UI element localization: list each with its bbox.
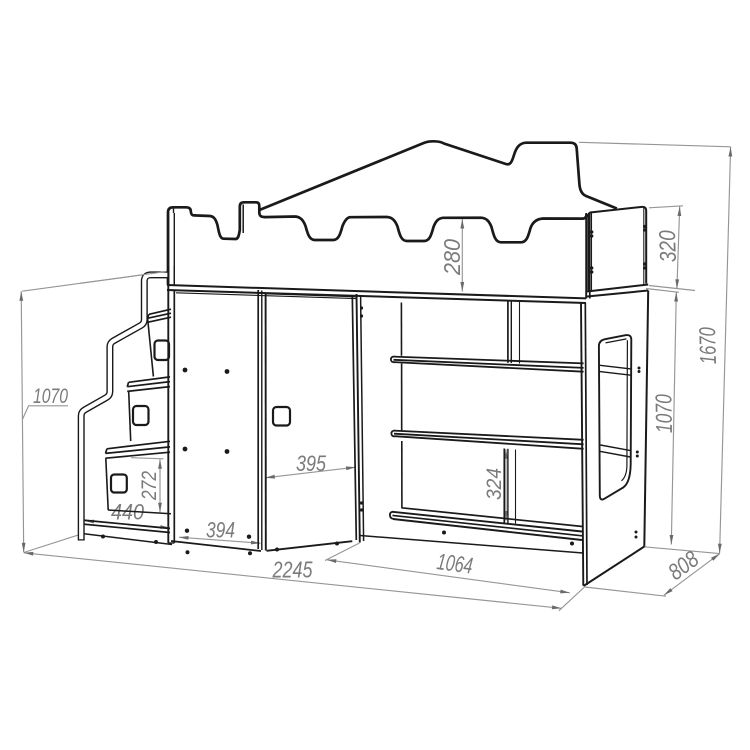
svg-text:1064: 1064 xyxy=(435,548,474,578)
svg-text:394: 394 xyxy=(206,518,235,543)
svg-text:272: 272 xyxy=(138,471,161,501)
svg-text:1670: 1670 xyxy=(694,327,721,365)
svg-text:324: 324 xyxy=(483,468,506,500)
svg-text:1070: 1070 xyxy=(650,394,677,434)
svg-text:1070: 1070 xyxy=(33,385,68,408)
svg-text:2245: 2245 xyxy=(272,557,313,583)
svg-text:280: 280 xyxy=(439,239,465,276)
svg-text:320: 320 xyxy=(654,230,681,263)
svg-text:395: 395 xyxy=(296,451,327,476)
